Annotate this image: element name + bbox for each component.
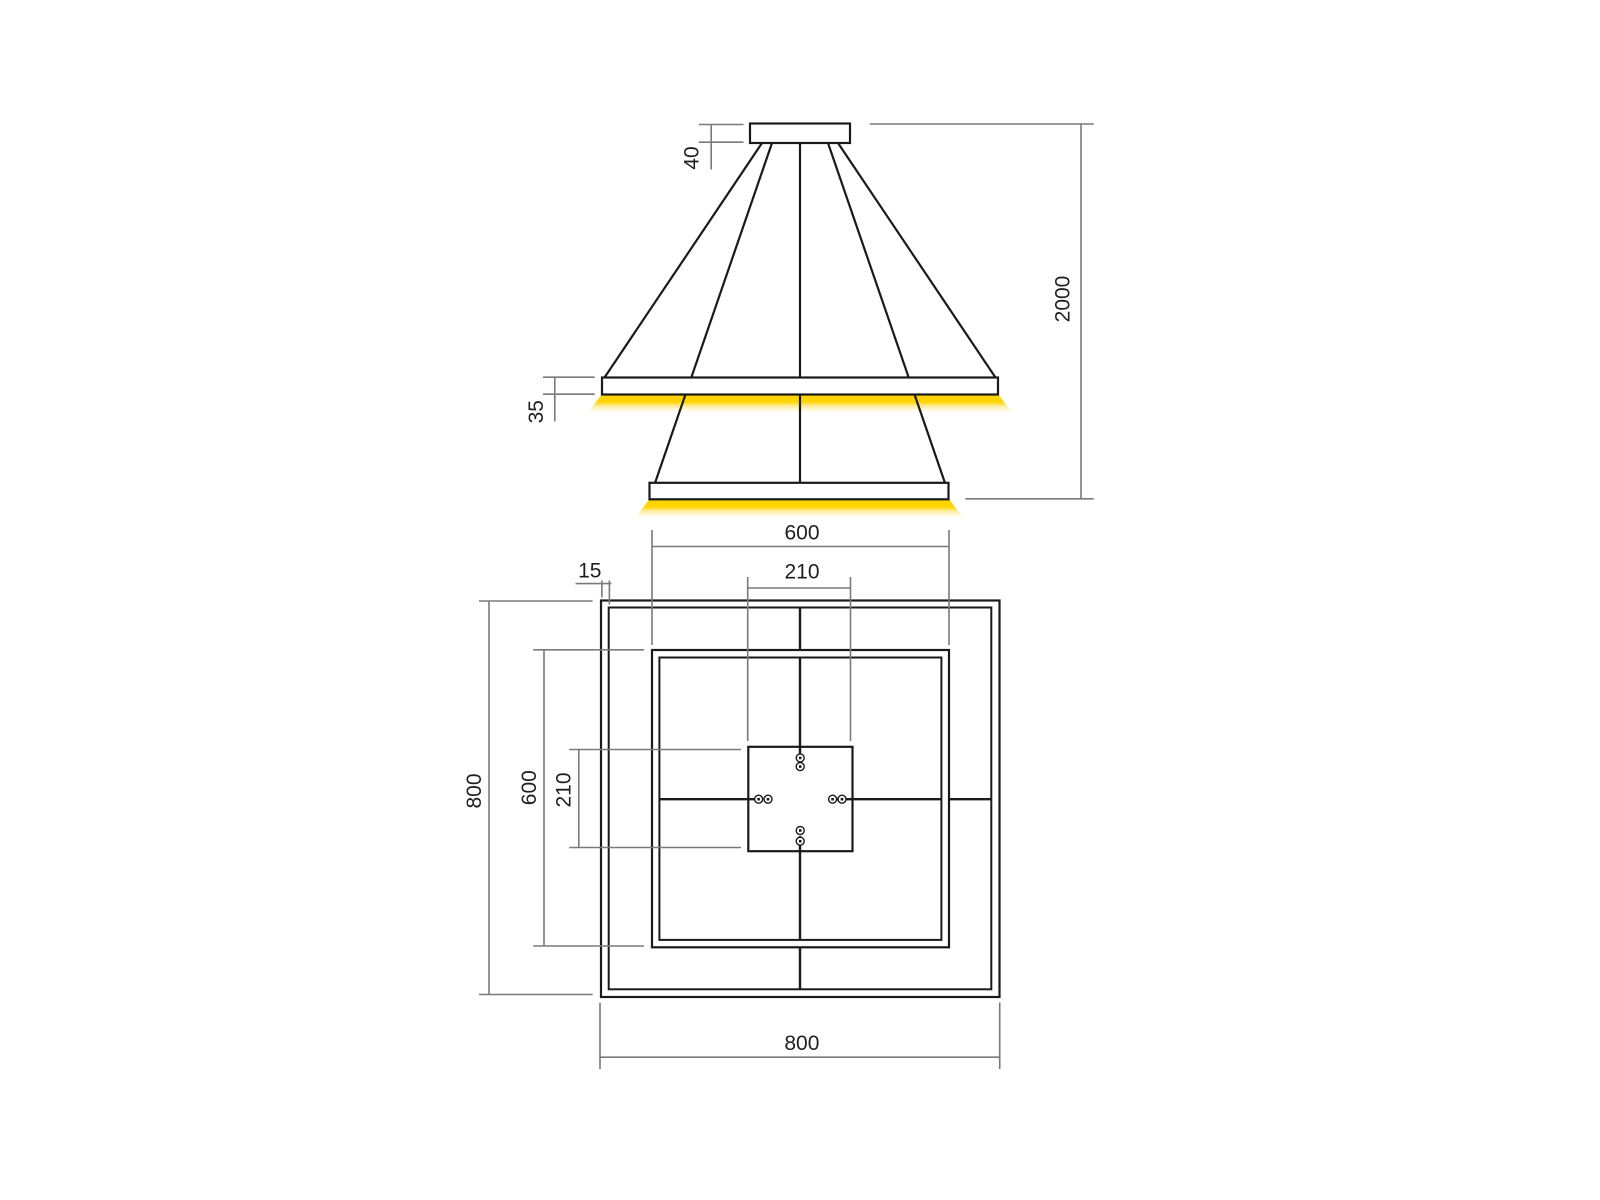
svg-text:15: 15 bbox=[578, 560, 601, 583]
svg-text:800: 800 bbox=[784, 1032, 819, 1055]
svg-text:40: 40 bbox=[681, 146, 704, 169]
svg-text:600: 600 bbox=[784, 522, 819, 545]
svg-text:210: 210 bbox=[553, 772, 576, 807]
svg-text:2000: 2000 bbox=[1052, 276, 1075, 323]
svg-text:210: 210 bbox=[784, 561, 819, 584]
svg-text:600: 600 bbox=[518, 770, 541, 805]
svg-text:35: 35 bbox=[525, 400, 548, 423]
svg-text:800: 800 bbox=[463, 773, 486, 808]
